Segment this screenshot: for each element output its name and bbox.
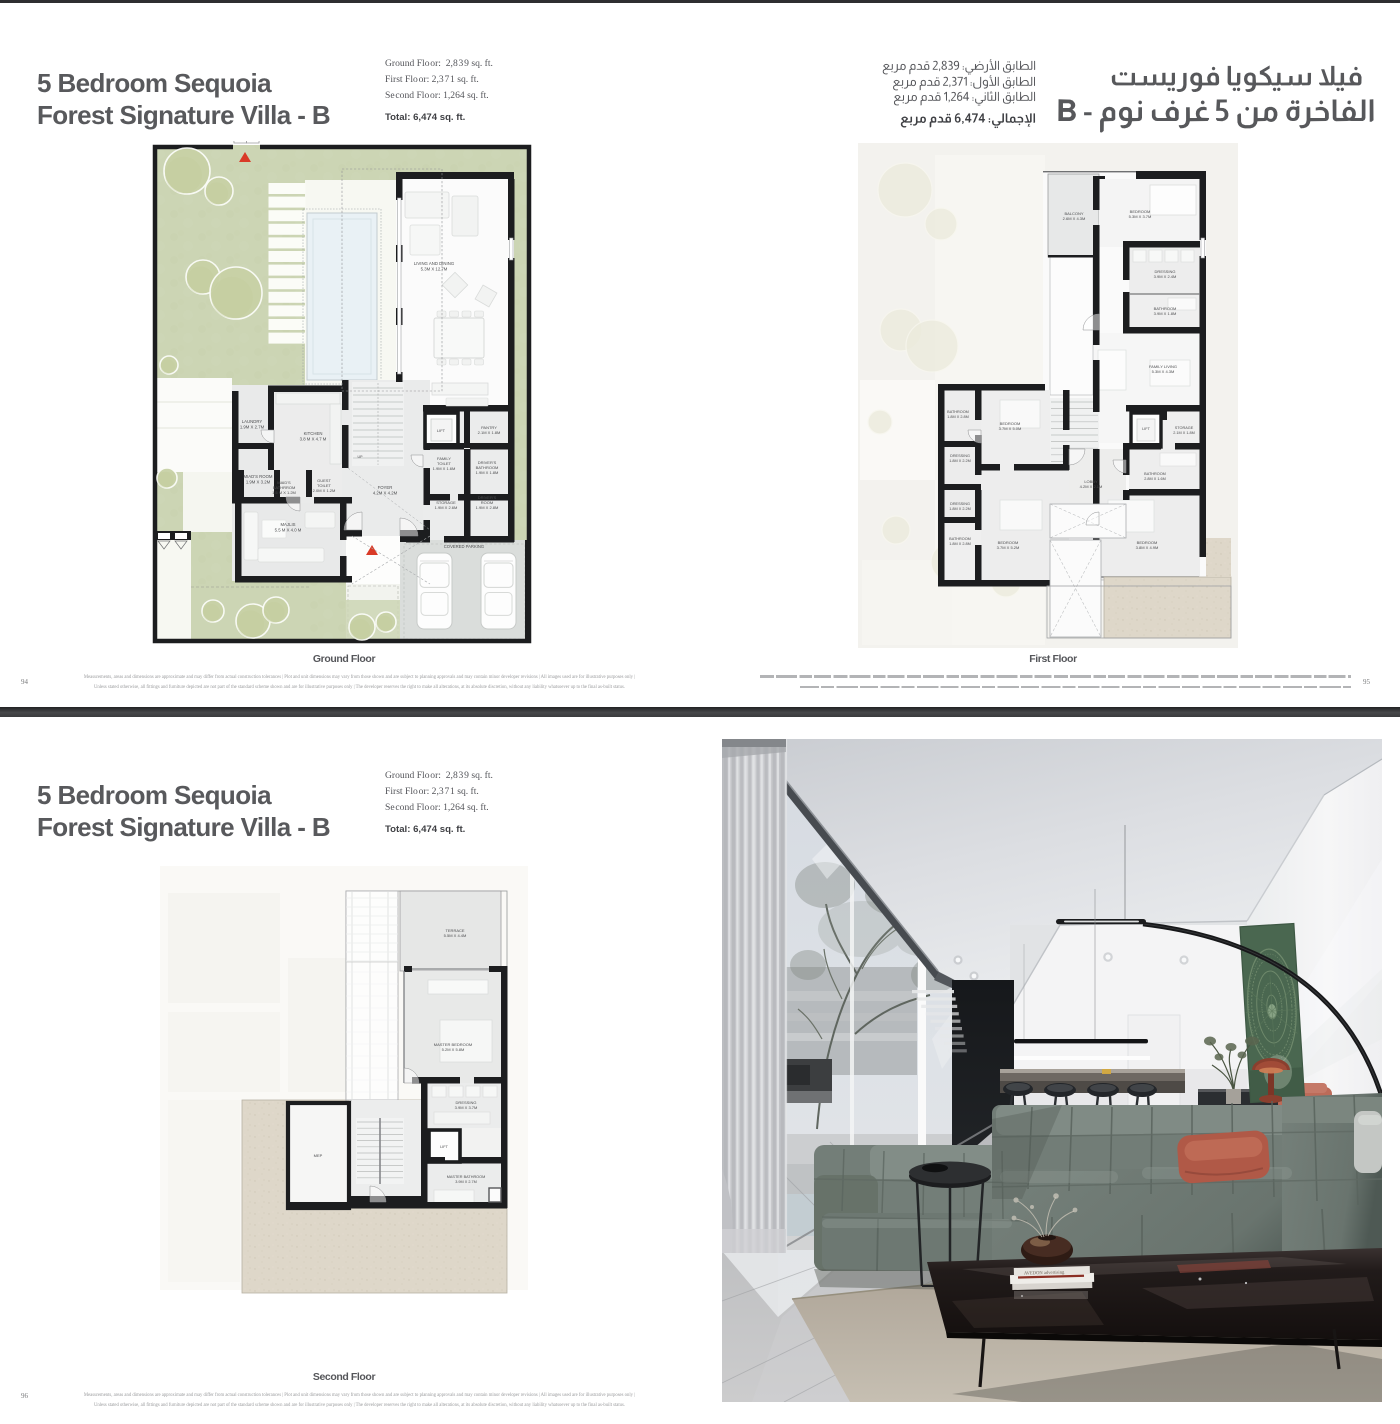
svg-text:LIVING AND DINING: LIVING AND DINING xyxy=(414,261,455,266)
svg-text:4.2M X 4.2M: 4.2M X 4.2M xyxy=(373,490,398,495)
svg-text:1.5 M X 1.2M: 1.5 M X 1.2M xyxy=(272,490,296,495)
svg-text:5.5 M X 4.0 M: 5.5 M X 4.0 M xyxy=(275,527,302,532)
svg-text:AVEDON advertising: AVEDON advertising xyxy=(1024,1269,1065,1275)
svg-text:1.9M X 2.7M: 1.9M X 2.7M xyxy=(240,424,265,429)
svg-text:3.8 M X 4.7 M: 3.8 M X 4.7 M xyxy=(300,436,327,441)
svg-text:MASTER BATHROOM: MASTER BATHROOM xyxy=(447,1175,486,1179)
svg-text:5.2M X 5.8M: 5.2M X 5.8M xyxy=(442,1047,465,1052)
svg-text:1.9M X 3.2M: 1.9M X 3.2M xyxy=(246,479,271,484)
svg-text:1.8M X 2.2M: 1.8M X 2.2M xyxy=(949,459,971,463)
svg-text:3.7M X 5.0M: 3.7M X 5.0M xyxy=(999,426,1022,431)
svg-text:2.8M X 1.6M: 2.8M X 1.6M xyxy=(1144,477,1166,481)
svg-text:BATHROOM: BATHROOM xyxy=(947,410,969,414)
svg-text:2.1M X 1.8M: 2.1M X 1.8M xyxy=(478,430,501,435)
svg-text:MEP: MEP xyxy=(314,1153,323,1158)
svg-text:FOYER: FOYER xyxy=(378,485,393,490)
svg-text:4.2M X 2.1M: 4.2M X 2.1M xyxy=(1080,484,1103,489)
svg-text:5.5M X 4.4M: 5.5M X 4.4M xyxy=(444,933,467,938)
svg-text:LIFT: LIFT xyxy=(1142,427,1150,431)
svg-text:STORAGE: STORAGE xyxy=(1175,426,1194,430)
svg-text:1.9M X 2.6M: 1.9M X 2.6M xyxy=(435,505,458,510)
svg-text:3.9M X 2.7M: 3.9M X 2.7M xyxy=(455,1180,477,1184)
svg-text:1.8M X 2.2M: 1.8M X 2.2M xyxy=(949,507,971,511)
svg-text:LIFT: LIFT xyxy=(437,428,446,433)
svg-text:1.9M X 1.8M: 1.9M X 1.8M xyxy=(476,470,499,475)
svg-text:2.0M X 1.2M: 2.0M X 1.2M xyxy=(313,488,336,493)
svg-text:3.7M X 5.2M: 3.7M X 5.2M xyxy=(997,545,1020,550)
svg-text:MAJLIS: MAJLIS xyxy=(280,522,295,527)
svg-text:1.8M X 2.8M: 1.8M X 2.8M xyxy=(949,542,971,546)
svg-text:3.9M X 2.4M: 3.9M X 2.4M xyxy=(1154,274,1177,279)
svg-text:5.3M X 12.7M: 5.3M X 12.7M xyxy=(421,266,448,271)
svg-text:COVERED PARKING: COVERED PARKING xyxy=(444,544,484,549)
svg-text:2.6M X 4.3M: 2.6M X 4.3M xyxy=(1063,216,1086,221)
svg-text:DRESSING: DRESSING xyxy=(950,454,970,458)
svg-text:BATHROOM: BATHROOM xyxy=(949,537,971,541)
svg-text:UP: UP xyxy=(358,455,364,459)
svg-text:1.8M X 2.8M: 1.8M X 2.8M xyxy=(947,415,969,419)
svg-text:DRESSING: DRESSING xyxy=(950,502,970,506)
svg-text:MIAD'S ROOM: MIAD'S ROOM xyxy=(244,474,273,479)
svg-text:LIFT: LIFT xyxy=(440,1145,448,1149)
svg-text:2.1M X 1.8M: 2.1M X 1.8M xyxy=(1173,431,1195,435)
svg-text:LAUNDRY: LAUNDRY xyxy=(242,419,263,424)
svg-text:1.9M X 1.6M: 1.9M X 1.6M xyxy=(433,466,456,471)
svg-text:5.3M X 4.3M: 5.3M X 4.3M xyxy=(1152,369,1175,374)
svg-text:5.3M X 3.7M: 5.3M X 3.7M xyxy=(1129,214,1152,219)
svg-text:KITCHEN: KITCHEN xyxy=(304,431,323,436)
svg-text:3.8M X 4.9M: 3.8M X 4.9M xyxy=(1136,545,1159,550)
svg-text:1.9M X 2.8M: 1.9M X 2.8M xyxy=(476,505,499,510)
svg-text:3.9M X 1.8M: 3.9M X 1.8M xyxy=(1154,311,1177,316)
svg-text:BATHROOM: BATHROOM xyxy=(1144,472,1166,476)
svg-text:3.9M X 3.7M: 3.9M X 3.7M xyxy=(455,1105,478,1110)
